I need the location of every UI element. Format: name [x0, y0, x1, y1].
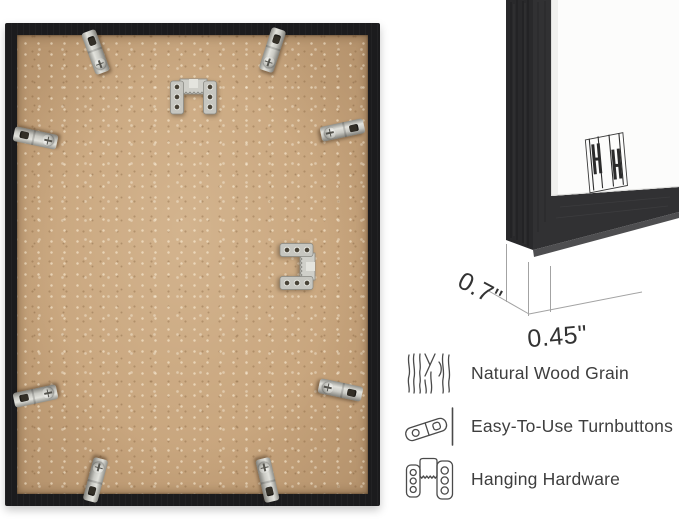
- frame-molding-side: [506, 0, 533, 250]
- screw-icon: [262, 55, 276, 69]
- turnbutton-hole: [88, 486, 97, 497]
- turnbutton-hole: [349, 123, 359, 132]
- turnbutton-hole: [19, 131, 29, 140]
- turnbutton-hole: [19, 394, 29, 403]
- screw-icon: [322, 381, 335, 394]
- feature-list: Natural Wood Grain Easy-To-Use Turnbutto…: [404, 350, 673, 502]
- hanging-hardware-middle: [279, 243, 316, 290]
- feature-row: Natural Wood Grain: [404, 350, 673, 396]
- turnbutton-icon: [404, 405, 456, 447]
- hanging-hardware-icon: [404, 456, 456, 502]
- turnbutton-hole: [347, 388, 357, 397]
- product-infographic: 0.7" 0.45" Natural Wood Grain: [0, 0, 679, 523]
- frame-corner-detail: 0.7" 0.45": [420, 0, 679, 350]
- turnbutton-hole: [266, 486, 275, 496]
- dimension-lines: [487, 244, 642, 316]
- screw-icon: [41, 387, 54, 400]
- turnbutton-hole: [87, 36, 97, 47]
- screw-icon: [93, 57, 107, 71]
- screw-icon: [324, 126, 337, 139]
- turnbutton-hole: [271, 34, 280, 45]
- dimension-depth-label: 0.7": [453, 267, 506, 313]
- feature-row: Hanging Hardware: [404, 456, 673, 502]
- feature-label: Hanging Hardware: [471, 469, 620, 490]
- feature-label: Easy-To-Use Turnbuttons: [471, 416, 673, 437]
- feature-row: Easy-To-Use Turnbuttons: [404, 403, 673, 449]
- feature-label: Natural Wood Grain: [471, 363, 629, 384]
- screw-icon: [92, 461, 105, 474]
- screw-icon: [258, 461, 271, 474]
- hanging-hardware-top: [170, 78, 217, 115]
- wood-grain-icon: [404, 352, 456, 394]
- screw-icon: [41, 134, 54, 147]
- dimension-face-label: 0.45": [526, 320, 588, 350]
